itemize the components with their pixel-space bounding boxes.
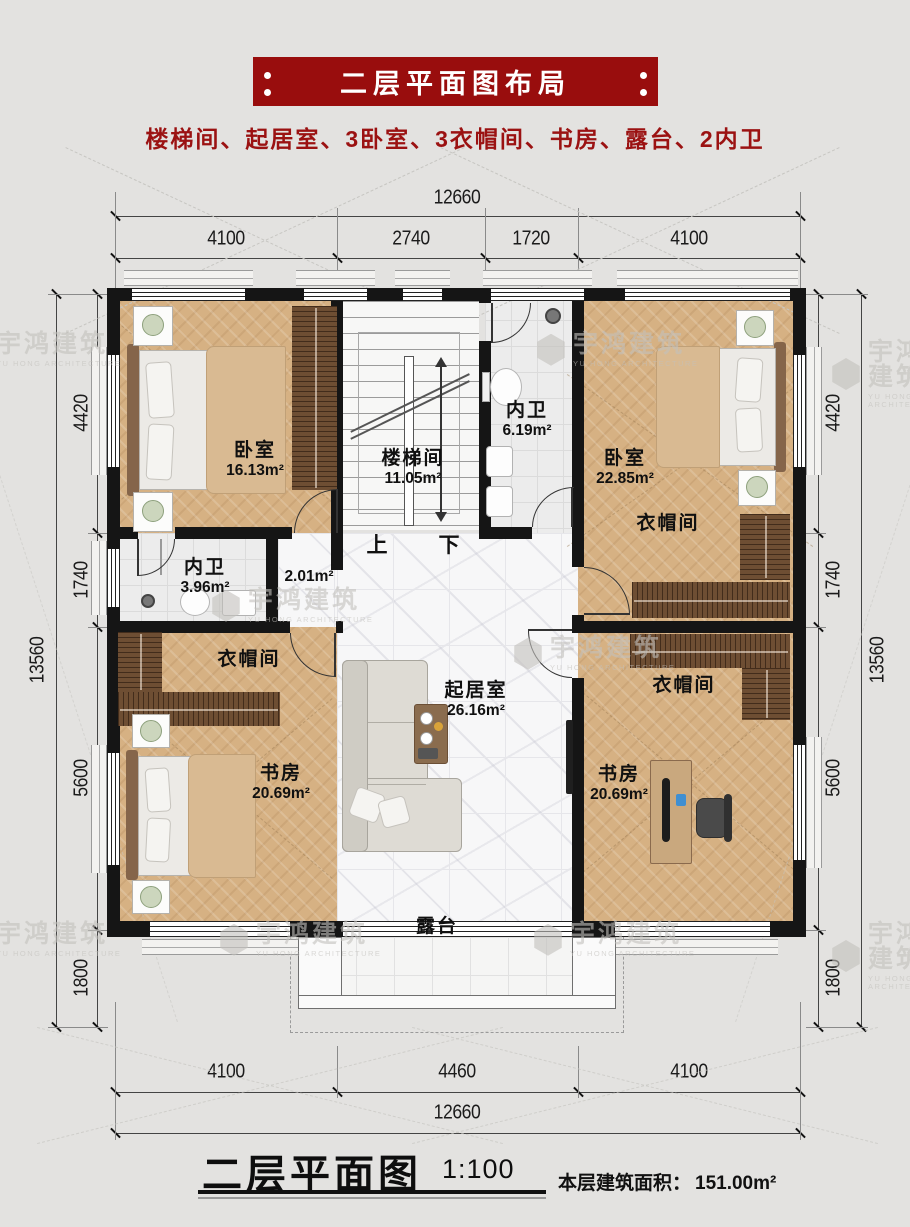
banner-dot <box>640 72 647 79</box>
dimension-line <box>115 1133 800 1134</box>
dim-left-total: 13560 <box>27 637 50 684</box>
wardrobe <box>292 306 337 490</box>
toilet-tank <box>482 372 490 402</box>
monitor <box>662 778 670 842</box>
plant <box>744 316 766 338</box>
watermark: 宇鸿建筑YU HONG ARCHITECTURE <box>512 636 675 672</box>
pillow <box>145 361 175 419</box>
wall-stair-right <box>479 294 491 303</box>
desk <box>650 760 692 864</box>
room-area: 20.69m² <box>252 785 310 803</box>
window-sill <box>806 737 822 868</box>
extension-line <box>48 294 108 295</box>
dimension-line <box>115 258 800 259</box>
window <box>491 288 584 301</box>
window-sill <box>91 541 107 615</box>
wall-h2-right <box>572 621 806 633</box>
dim-top-total: 12660 <box>434 187 481 210</box>
sink <box>486 446 513 477</box>
extension-line <box>337 208 338 270</box>
watermark-logo-icon <box>830 940 862 972</box>
extension-line <box>800 192 801 288</box>
dim-bottom-seg: 4460 <box>438 1061 475 1084</box>
room-area: 20.69m² <box>590 786 648 804</box>
room-area: 3.96m² <box>180 579 229 597</box>
watermark: 宇鸿建筑YU HONG ARCHITECTURE <box>535 332 698 368</box>
watermark-cn: 宇鸿建筑 <box>550 636 675 661</box>
watermark: 宇鸿建筑YU HONG ARCHITECTURE <box>210 588 373 624</box>
title-underline <box>198 1190 546 1194</box>
drawing-scale: 1:100 <box>442 1154 515 1185</box>
room-label-terrace: 露台 <box>416 916 458 938</box>
table-remote <box>418 748 438 759</box>
pillow <box>735 407 763 452</box>
stair-rail <box>404 356 414 526</box>
dim-bottom-seg: 4100 <box>670 1061 707 1084</box>
watermark-en: YU HONG ARCHITECTURE <box>570 950 695 958</box>
window <box>132 288 245 301</box>
wardrobe <box>118 632 162 692</box>
room-label-study-right: 书房 20.69m² <box>590 764 648 804</box>
watermark-en: YU HONG ARCHITECTURE <box>550 664 675 672</box>
window-sill <box>806 347 822 475</box>
room-name: 露台 <box>416 916 458 938</box>
watermark-cn: 宇鸿建筑 <box>248 588 373 613</box>
wall-study-right <box>572 678 584 936</box>
table-flower <box>434 722 443 731</box>
watermark: 宇鸿建筑YU HONG ARCHITECTURE <box>830 922 910 990</box>
watermark-logo-icon <box>512 638 544 670</box>
dim-left-seg: 1800 <box>71 959 94 996</box>
room-label-closet-right-bottom: 衣帽间 <box>652 675 715 697</box>
window-sill <box>617 270 798 286</box>
dimension-line <box>56 294 57 1027</box>
room-label-bedroom-right: 卧室 22.85m² <box>596 448 654 488</box>
floor-area-value: 151.00m² <box>695 1173 776 1195</box>
window <box>793 355 806 467</box>
room-name: 书房 <box>252 763 310 785</box>
room-label-bath-top: 内卫 6.19m² <box>502 400 551 440</box>
watermark-en: YU HONG ARCHITECTURE <box>0 360 121 368</box>
sofa-back <box>342 660 368 852</box>
wall-bath-top-bottom <box>574 527 584 539</box>
shower-head <box>545 308 561 324</box>
extension-line <box>806 294 868 295</box>
dim-right-total: 13560 <box>867 637 890 684</box>
room-name: 书房 <box>590 764 648 786</box>
room-name: 衣帽间 <box>652 675 715 697</box>
pillow <box>144 767 171 813</box>
room-area: 2.01m² <box>284 568 333 586</box>
watermark: 宇鸿建筑YU HONG ARCHITECTURE <box>0 332 121 368</box>
tv <box>566 720 573 794</box>
extension-line <box>806 627 826 628</box>
window <box>403 288 442 301</box>
door-leaf <box>334 633 336 677</box>
door-leaf <box>336 489 338 533</box>
window <box>304 288 367 301</box>
window <box>107 355 120 467</box>
extension-line <box>806 533 826 534</box>
dim-top-seg: 2740 <box>392 228 429 251</box>
extension-line <box>337 1046 338 1098</box>
watermark-en: YU HONG ARCHITECTURE <box>0 950 121 958</box>
extension-line <box>578 1046 579 1098</box>
title-banner: 二层平面图布局 <box>253 57 658 106</box>
extension-line <box>578 208 579 270</box>
extension-line <box>800 1002 801 1140</box>
pillow <box>146 423 175 480</box>
watermark-cn: 宇鸿建筑 <box>573 332 698 357</box>
bed-blanket <box>188 754 256 878</box>
pillow <box>734 357 763 403</box>
watermark-en: YU HONG ARCHITECTURE <box>248 616 373 624</box>
room-name: 楼梯间 <box>381 448 444 470</box>
room-label-stairwell: 楼梯间 11.05m² <box>381 448 444 488</box>
floor-area-note: 本层建筑面积： 151.00m² <box>558 1168 776 1195</box>
table-plate <box>420 732 433 745</box>
room-label-bedroom-left: 卧室 16.13m² <box>226 440 284 480</box>
banner-dot <box>264 72 271 79</box>
room-area: 26.16m² <box>444 702 507 720</box>
watermark-en: YU HONG ARCHITECTURE <box>868 393 910 408</box>
watermark: 宇鸿建筑YU HONG ARCHITECTURE <box>532 922 695 958</box>
extension-line <box>115 192 116 288</box>
stair-arrow-down <box>435 512 447 522</box>
extension-line <box>806 930 826 931</box>
window <box>107 549 120 607</box>
room-label-closet-left: 衣帽间 <box>217 649 280 671</box>
wall-bath-top-bottom <box>479 527 532 539</box>
desk-item <box>676 794 686 806</box>
door-leaf <box>491 303 493 343</box>
window-sill <box>296 270 375 286</box>
watermark-cn: 宇鸿建筑 <box>868 340 910 390</box>
window-sill <box>395 270 450 286</box>
watermark: 宇鸿建筑YU HONG ARCHITECTURE <box>218 922 381 958</box>
watermark-en: YU HONG ARCHITECTURE <box>256 950 381 958</box>
banner-dot <box>640 89 647 96</box>
room-area: 22.85m² <box>596 470 654 488</box>
window <box>107 753 120 865</box>
room-list-subtitle: 楼梯间、起居室、3卧室、3衣帽间、书房、露台、2内卫 <box>0 120 910 154</box>
room-area: 6.19m² <box>502 422 551 440</box>
stair-up-label: 上 <box>367 529 388 559</box>
dim-right-seg: 5600 <box>823 759 846 796</box>
stair-arrow-line <box>440 366 442 514</box>
room-label-study-left: 书房 20.69m² <box>252 763 310 803</box>
dim-right-seg: 1740 <box>823 561 846 598</box>
banner-dot <box>264 89 271 96</box>
watermark-en: YU HONG ARCHITECTURE <box>573 360 698 368</box>
watermark-logo-icon <box>218 924 250 956</box>
window-sill <box>124 270 253 286</box>
room-name: 内卫 <box>502 400 551 422</box>
stair-down-label: 下 <box>439 529 460 559</box>
extension-line <box>806 1027 868 1028</box>
room-area: 16.13m² <box>226 462 284 480</box>
watermark: 宇鸿建筑YU HONG ARCHITECTURE <box>0 922 121 958</box>
dim-top-seg: 4100 <box>207 228 244 251</box>
watermark-cn: 宇鸿建筑 <box>570 922 695 947</box>
room-name: 卧室 <box>596 448 654 470</box>
door-leaf <box>584 613 630 615</box>
watermark-en: YU HONG ARCHITECTURE <box>868 975 910 990</box>
watermark: 宇鸿建筑YU HONG ARCHITECTURE <box>830 340 910 408</box>
sink <box>486 486 513 517</box>
bed-headboard <box>126 750 138 880</box>
room-label-hall: 2.01m² <box>284 568 333 586</box>
door-leaf <box>571 487 573 527</box>
shower-head <box>141 594 155 608</box>
dim-top-seg: 1720 <box>512 228 549 251</box>
room-name: 卧室 <box>226 440 284 462</box>
room-label-closet-right-top: 衣帽间 <box>636 513 699 535</box>
watermark-logo-icon <box>830 358 862 390</box>
room-label-living: 起居室 26.16m² <box>444 680 507 720</box>
window <box>793 745 806 860</box>
plant <box>140 886 162 908</box>
title-underline-shadow <box>198 1197 546 1199</box>
plant <box>746 476 768 498</box>
extension-line <box>115 1002 116 1140</box>
room-label-bath-mid: 内卫 3.96m² <box>180 557 229 597</box>
pillow <box>145 817 171 862</box>
terrace-parapet-front <box>298 995 616 1009</box>
sofa-seam <box>368 784 426 785</box>
watermark-logo-icon <box>532 924 564 956</box>
room-name: 内卫 <box>180 557 229 579</box>
dimension-line <box>115 216 800 217</box>
page-title: 二层平面图布局 <box>340 62 571 101</box>
watermark-cn: 宇鸿建筑 <box>868 922 910 972</box>
plant <box>142 500 164 522</box>
room-area: 11.05m² <box>381 470 444 488</box>
watermark-logo-icon <box>535 334 567 366</box>
wardrobe <box>632 582 790 618</box>
room-name: 衣帽间 <box>636 513 699 535</box>
dim-bottom-total: 12660 <box>434 1102 481 1125</box>
door-leaf <box>528 629 572 631</box>
room-name: 起居室 <box>444 680 507 702</box>
office-chair-back <box>724 794 732 842</box>
plant <box>142 314 164 336</box>
window-sill <box>483 270 592 286</box>
extension-line <box>485 208 486 270</box>
bed-headboard <box>127 344 139 496</box>
dim-top-seg: 4100 <box>670 228 707 251</box>
dimension-line <box>115 1092 800 1093</box>
wardrobe <box>740 514 790 580</box>
window-sill <box>91 745 107 873</box>
window <box>625 288 790 301</box>
table-plate <box>420 712 433 725</box>
floor-area-label: 本层建筑面积： <box>558 1168 691 1195</box>
stair-arrow-up <box>435 357 447 367</box>
wardrobe <box>742 668 790 720</box>
plant <box>140 720 162 742</box>
watermark-cn: 宇鸿建筑 <box>0 922 121 947</box>
room-name: 衣帽间 <box>217 649 280 671</box>
extension-line <box>48 1027 108 1028</box>
floor-plan-page: 二层平面图布局 楼梯间、起居室、3卧室、3衣帽间、书房、露台、2内卫 12660… <box>0 0 910 1227</box>
watermark-cn: 宇鸿建筑 <box>256 922 381 947</box>
door-leaf <box>137 539 139 576</box>
watermark-cn: 宇鸿建筑 <box>0 332 121 357</box>
